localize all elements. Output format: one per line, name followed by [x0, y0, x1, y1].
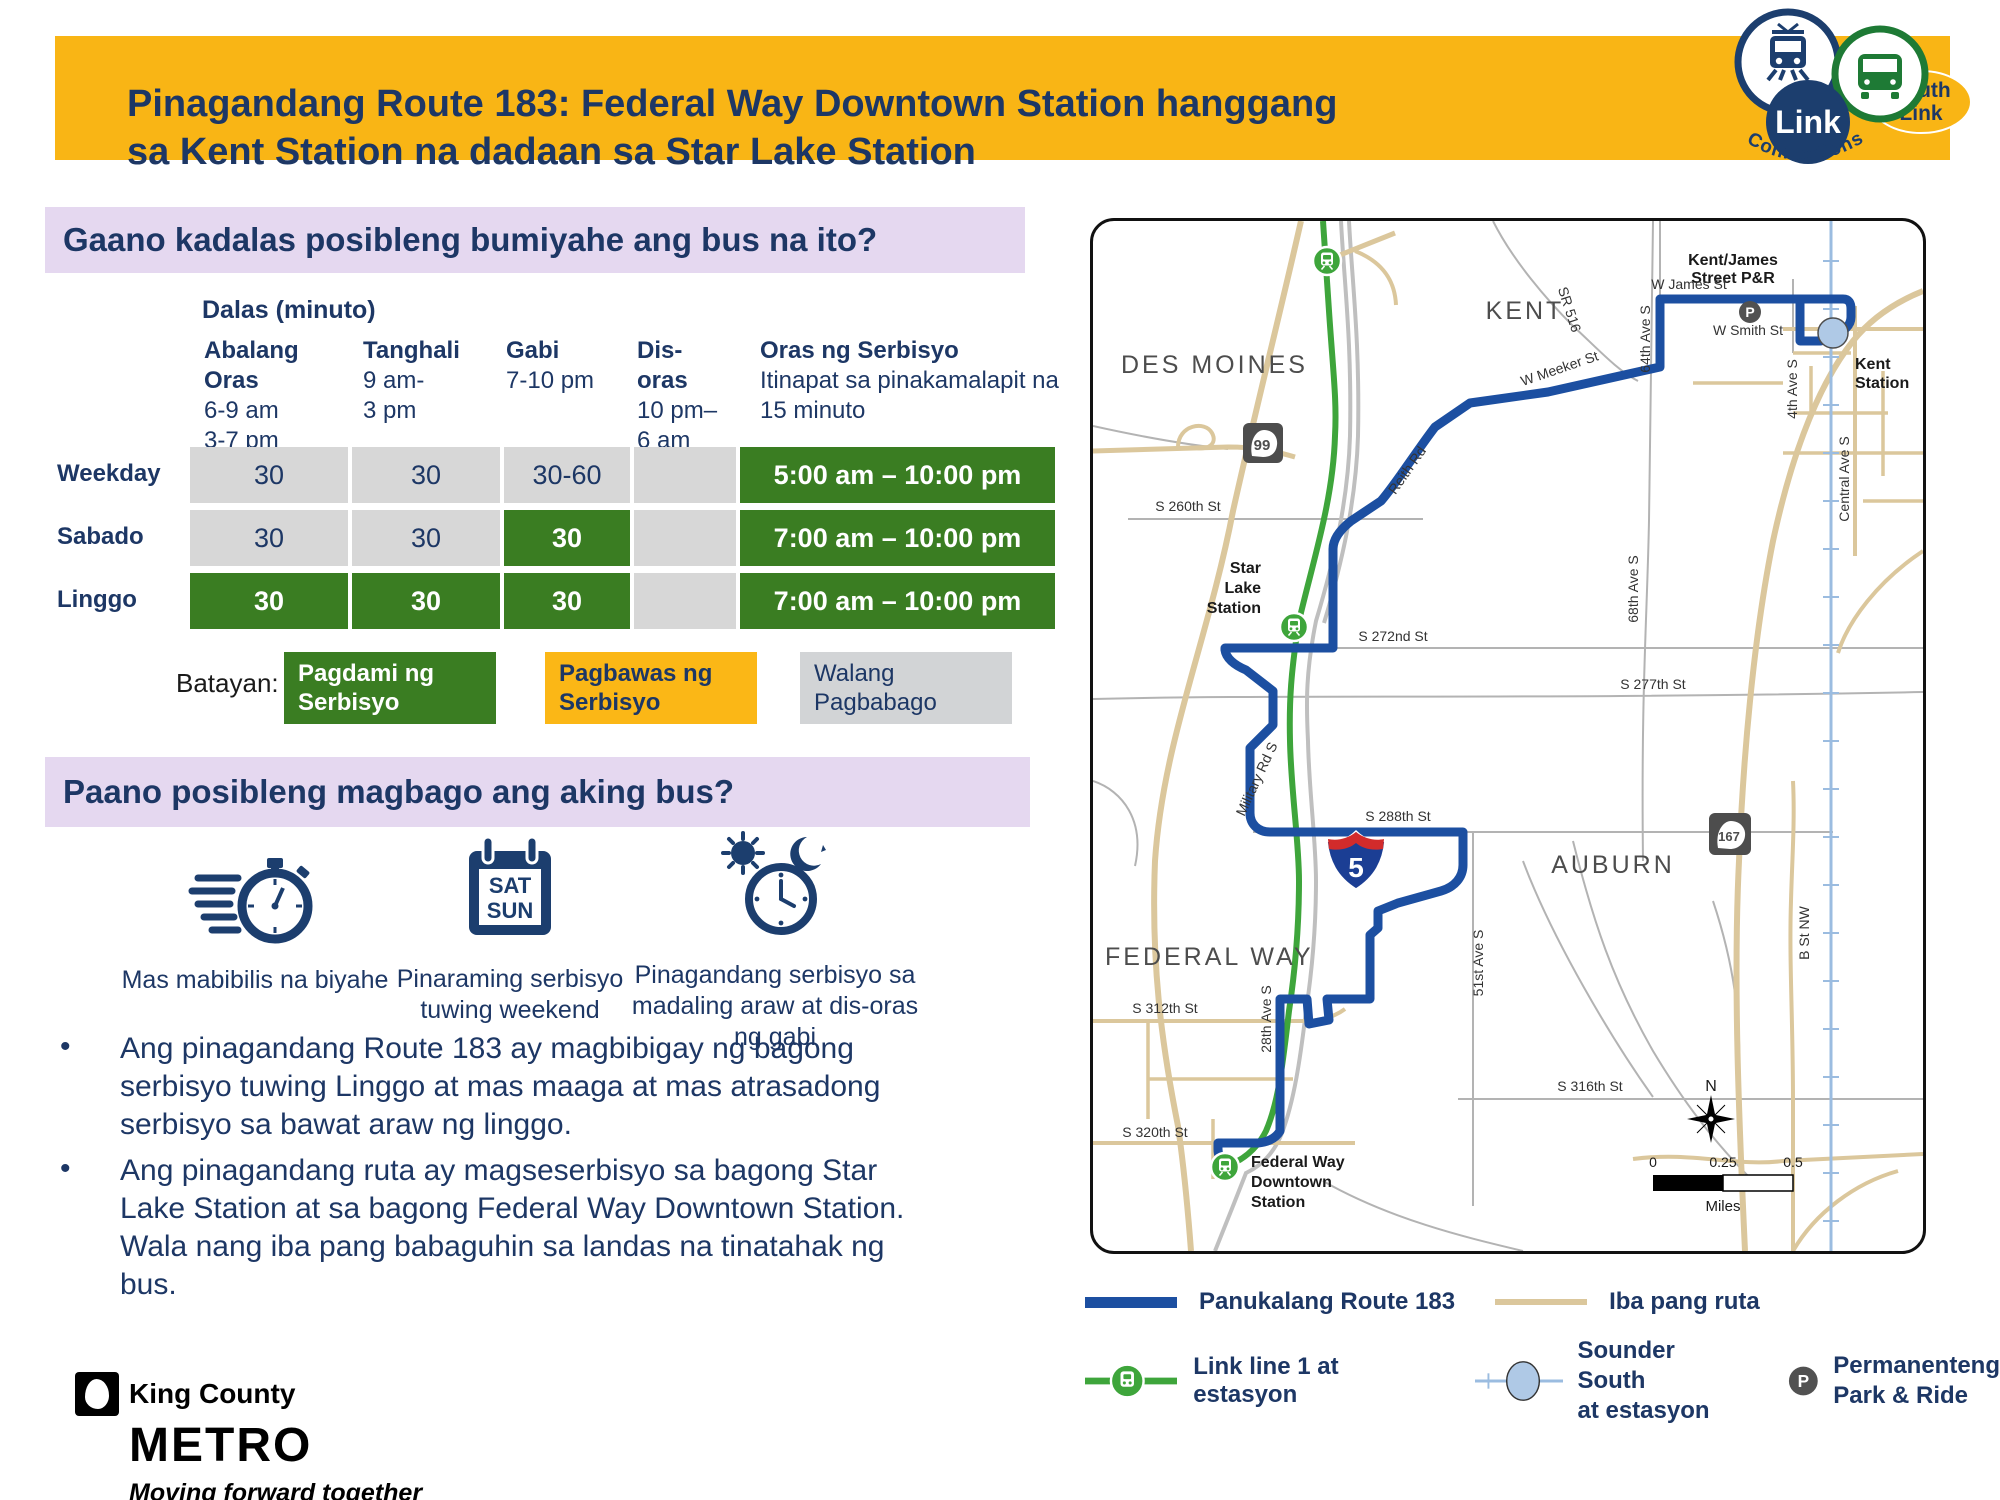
route-map: P 99 167 5 DES MOINES KENT [1090, 218, 1926, 1254]
svg-text:S 260th St: S 260th St [1155, 498, 1220, 514]
svg-text:W James St: W James St [1651, 276, 1727, 292]
svg-text:Miles: Miles [1705, 1198, 1740, 1215]
legend-sounder: Sounder Southat estasyon [1577, 1336, 1742, 1426]
cell-weekday-hours: 5:00 am – 10:00 pm [740, 447, 1055, 503]
cell-sabado-peak: 30 [190, 510, 348, 566]
legend-no-change: Walang Pagbabago [800, 652, 1012, 724]
svg-text:S 320th St: S 320th St [1122, 1124, 1187, 1140]
cell-linggo-hours: 7:00 am – 10:00 pm [740, 573, 1055, 629]
row-label-weekday: Weekday [57, 460, 161, 488]
svg-text:64th Ave S: 64th Ave S [1637, 305, 1653, 372]
route-183-swatch [1085, 1295, 1177, 1309]
svg-text:Kent/James: Kent/James [1688, 252, 1778, 269]
row-label-sabado: Sabado [57, 523, 144, 551]
svg-text:Station: Station [1855, 375, 1909, 392]
bullet-text: Ang pinagandang ruta ay magseserbisyo sa… [120, 1152, 940, 1304]
svg-text:5: 5 [1348, 852, 1364, 883]
svg-text:Kent: Kent [1855, 356, 1891, 373]
svg-text:99: 99 [1254, 437, 1271, 454]
link-line-swatch [1085, 1355, 1177, 1407]
svg-text:Station: Station [1251, 1194, 1305, 1211]
day-night-clock-icon [695, 825, 855, 945]
sounder-swatch [1475, 1355, 1563, 1407]
table-label: Dalas (minuto) [202, 296, 376, 325]
feature-caption: Mas mabibilis na biyahe [120, 965, 390, 996]
i5-shield: 5 [1327, 831, 1385, 889]
row-label-linggo: Linggo [57, 586, 137, 614]
svg-text:S 272nd St: S 272nd St [1358, 628, 1427, 644]
legend-link-line: Link line 1 at estasyon [1193, 1353, 1439, 1409]
svg-text:0.5: 0.5 [1783, 1154, 1803, 1170]
park-ride-swatch: P [1787, 1364, 1820, 1398]
king-county-metro-logo: King County METRO Moving forward togethe… [75, 1372, 422, 1500]
page-title-line1: Pinagandang Route 183: Federal Way Downt… [127, 80, 1687, 128]
list-item: • Ang pinagandang ruta ay magseserbisyo … [60, 1152, 940, 1304]
header-band: Pinagandang Route 183: Federal Way Downt… [55, 36, 1950, 160]
frequency-heading-text: Gaano kadalas posibleng bumiyahe ang bus… [45, 221, 877, 259]
cell-sabado-hours: 7:00 am – 10:00 pm [740, 510, 1055, 566]
flyer-page: Pinagandang Route 183: Federal Way Downt… [0, 0, 2000, 1500]
kent-station-sounder-circle [1818, 318, 1848, 348]
summary-bullets: • Ang pinagandang Route 183 ay magbibiga… [60, 1030, 940, 1312]
svg-text:P: P [1745, 304, 1754, 320]
batayan-label: Batayan: [176, 668, 279, 699]
svg-text:Station: Station [1207, 600, 1261, 617]
bullet-text: Ang pinagandang Route 183 ay magbibigay … [120, 1030, 940, 1144]
map-legend-row1: Panukalang Route 183 Iba pang ruta [1085, 1288, 1760, 1316]
col-header-peak: Abalang Oras 6-9 am3-7 pm [204, 336, 354, 456]
cell-linggo-evening: 30 [504, 573, 630, 629]
svg-text:SAT: SAT [489, 873, 532, 898]
svg-text:S 316th St: S 316th St [1557, 1078, 1622, 1094]
sr99-shield: 99 [1243, 423, 1283, 463]
city-label-auburn: AUBURN [1551, 851, 1675, 879]
svg-text:S 312th St: S 312th St [1132, 1000, 1197, 1016]
svg-text:N: N [1705, 1078, 1717, 1095]
route-183-line [1218, 299, 1851, 1167]
legend-park-ride: PermanentengPark & Ride [1833, 1351, 2000, 1411]
svg-text:4th Ave S: 4th Ave S [1784, 359, 1800, 419]
compass-rose: N [1687, 1078, 1735, 1143]
star-lake-station-icon [1280, 613, 1308, 641]
svg-text:SUN: SUN [487, 898, 533, 923]
changes-heading-text: Paano posibleng magbago ang aking bus? [45, 773, 734, 811]
king-county-face-icon [75, 1372, 119, 1416]
svg-text:W Smith St: W Smith St [1713, 322, 1783, 338]
federal-way-downtown-station-icon [1211, 1153, 1239, 1181]
svg-text:Lake: Lake [1225, 580, 1262, 597]
cell-weekday-night [634, 447, 736, 503]
col-header-night: Dis-oras 10 pm–6 am [637, 336, 737, 456]
bullet-dot: • [60, 1152, 120, 1304]
svg-text:Reith Rd: Reith Rd [1385, 443, 1429, 497]
link-connections-logo: South Link Link [1728, 2, 1988, 182]
sr167-shield: 167 [1709, 813, 1751, 855]
feature-caption: Pinaraming serbisyo tuwing weekend [390, 964, 630, 1026]
svg-text:Central Ave S: Central Ave S [1836, 436, 1852, 521]
cell-weekday-evening: 30-60 [504, 447, 630, 503]
feature-early-late-service: Pinagandang serbisyo sa madaling araw at… [620, 825, 930, 1053]
brand-king-county: King County [129, 1378, 295, 1410]
cell-linggo-midday: 30 [352, 573, 500, 629]
frequency-section-heading: Gaano kadalas posibleng bumiyahe ang bus… [45, 207, 1025, 273]
svg-text:Federal Way: Federal Way [1251, 1154, 1345, 1171]
svg-text:Star: Star [1230, 560, 1261, 577]
link-station-icon-north [1313, 247, 1341, 275]
city-label-federal-way: FEDERAL WAY [1105, 943, 1314, 971]
changes-section-heading: Paano posibleng magbago ang aking bus? [45, 757, 1030, 827]
svg-text:Military Rd S: Military Rd S [1232, 740, 1280, 819]
city-label-des-moines: DES MOINES [1121, 351, 1308, 379]
feature-faster-trips: Mas mabibilis na biyahe [120, 840, 390, 996]
brand-metro: METRO [129, 1418, 422, 1473]
cell-linggo-night [634, 573, 736, 629]
cell-sabado-midday: 30 [352, 510, 500, 566]
svg-text:S 288th St: S 288th St [1365, 808, 1430, 824]
link-text: Link [1775, 104, 1841, 140]
svg-text:S 277th St: S 277th St [1620, 676, 1685, 692]
cell-sabado-evening: 30 [504, 510, 630, 566]
cell-sabado-night [634, 510, 736, 566]
svg-text:68th Ave S: 68th Ave S [1625, 555, 1641, 622]
weekend-calendar-icon: SAT SUN [455, 833, 565, 949]
col-header-evening: Gabi 7-10 pm [506, 336, 626, 396]
legend-other-routes: Iba pang ruta [1609, 1288, 1760, 1316]
svg-text:B St NW: B St NW [1796, 905, 1812, 959]
brand-tagline: Moving forward together [129, 1479, 422, 1500]
svg-text:0: 0 [1649, 1154, 1657, 1170]
svg-text:Downtown: Downtown [1251, 1174, 1332, 1191]
legend-less-service: Pagbawas ng Serbisyo [545, 652, 757, 724]
bullet-dot: • [60, 1030, 120, 1144]
cell-weekday-peak: 30 [190, 447, 348, 503]
svg-text:28th Ave S: 28th Ave S [1258, 985, 1274, 1052]
other-route-swatch [1495, 1295, 1587, 1309]
sounder-line [1823, 221, 1839, 1251]
svg-text:0.25: 0.25 [1709, 1154, 1736, 1170]
city-label-kent: KENT [1486, 297, 1565, 325]
page-title-line2: sa Kent Station na dadaan sa Star Lake S… [127, 128, 1687, 176]
map-legend-row2: Link line 1 at estasyon Sounder Southat … [1085, 1336, 2000, 1426]
svg-text:51st Ave S: 51st Ave S [1470, 930, 1486, 997]
svg-text:P: P [1797, 1371, 1809, 1391]
cell-linggo-peak: 30 [190, 573, 348, 629]
feature-weekend-service: SAT SUN Pinaraming serbisyo tuwing weeke… [390, 833, 630, 1026]
cell-weekday-midday: 30 [352, 447, 500, 503]
bus-icon [1835, 29, 1925, 119]
stopwatch-icon [180, 840, 330, 950]
legend-route-183: Panukalang Route 183 [1199, 1288, 1455, 1316]
list-item: • Ang pinagandang Route 183 ay magbibiga… [60, 1030, 940, 1144]
col-header-midday: Tanghali 9 am-3 pm [363, 336, 503, 426]
page-title: Pinagandang Route 183: Federal Way Downt… [127, 80, 1687, 176]
park-and-ride-icon: P [1739, 301, 1761, 323]
svg-text:167: 167 [1718, 829, 1740, 844]
col-header-service-hours: Oras ng Serbisyo Itinapat sa pinakamalap… [760, 336, 1060, 426]
legend-more-service: Pagdami ng Serbisyo [284, 652, 496, 724]
